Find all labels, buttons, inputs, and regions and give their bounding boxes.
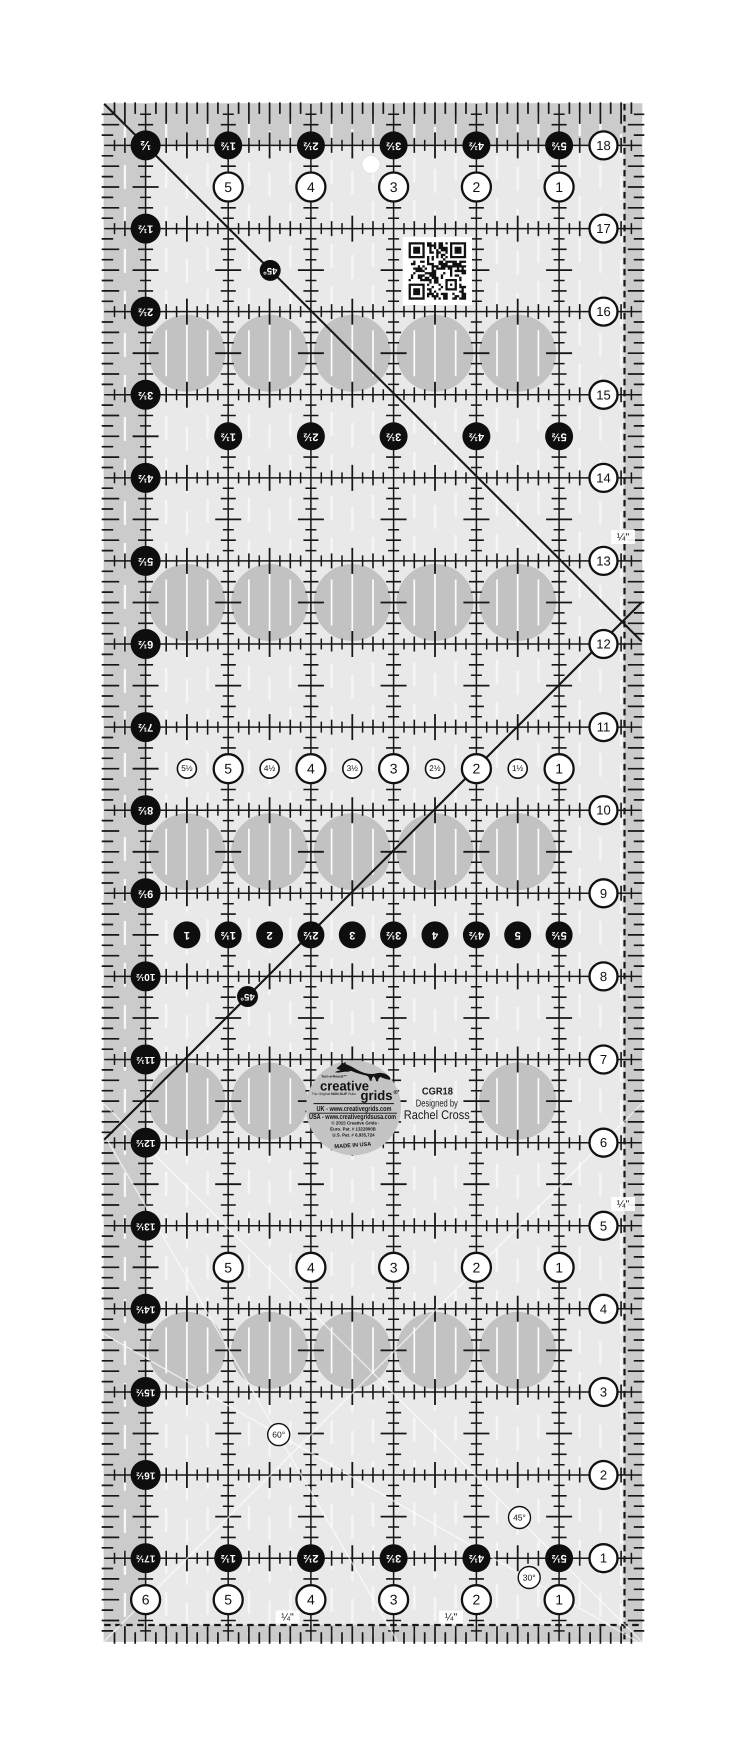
svg-text:3: 3	[390, 1592, 398, 1608]
svg-text:1½: 1½	[221, 1552, 236, 1564]
svg-text:3½: 3½	[347, 764, 359, 773]
svg-text:1: 1	[555, 1259, 563, 1275]
svg-text:2: 2	[473, 1592, 481, 1608]
svg-text:4: 4	[307, 1259, 315, 1275]
svg-text:¼": ¼"	[617, 532, 630, 544]
svg-text:1: 1	[555, 179, 563, 195]
svg-text:8½: 8½	[138, 804, 153, 816]
svg-text:2½: 2½	[303, 929, 318, 941]
svg-text:6: 6	[142, 1592, 150, 1608]
svg-text:8: 8	[600, 969, 607, 984]
svg-text:1½: 1½	[138, 223, 153, 235]
svg-text:4: 4	[307, 179, 315, 195]
svg-text:2: 2	[473, 179, 481, 195]
svg-text:1: 1	[555, 1592, 563, 1608]
svg-text:12½: 12½	[136, 1137, 155, 1148]
svg-text:U.S. Pat. # 6,935,724: U.S. Pat. # 6,935,724	[332, 1133, 375, 1138]
svg-text:18: 18	[596, 138, 610, 153]
svg-text:5: 5	[224, 1592, 232, 1608]
svg-text:15½: 15½	[136, 1387, 155, 1398]
svg-text:13½: 13½	[136, 1220, 155, 1231]
svg-text:2½: 2½	[303, 1552, 318, 1564]
svg-text:9½: 9½	[138, 887, 153, 899]
svg-text:3: 3	[349, 929, 355, 941]
svg-text:¼": ¼"	[617, 1199, 630, 1211]
svg-text:3: 3	[390, 179, 398, 195]
svg-text:1½: 1½	[221, 430, 236, 442]
svg-text:5: 5	[224, 1259, 232, 1275]
svg-text:4½: 4½	[469, 139, 484, 151]
svg-text:Euro. Pat. # 1322800B: Euro. Pat. # 1322800B	[330, 1127, 376, 1132]
svg-text:3½: 3½	[386, 1552, 401, 1564]
svg-text:5: 5	[600, 1218, 607, 1233]
svg-text:®: ®	[394, 1090, 398, 1096]
svg-text:3: 3	[390, 1259, 398, 1275]
svg-text:2: 2	[473, 1259, 481, 1275]
svg-text:10: 10	[596, 803, 610, 818]
svg-text:9: 9	[600, 886, 607, 901]
svg-text:4: 4	[307, 761, 315, 777]
svg-text:3: 3	[390, 761, 398, 777]
svg-text:4½: 4½	[469, 1552, 484, 1564]
svg-text:CGR18: CGR18	[422, 1087, 453, 1098]
svg-text:14: 14	[596, 470, 610, 485]
svg-text:5½: 5½	[551, 430, 566, 442]
svg-text:2½: 2½	[303, 430, 318, 442]
svg-text:6: 6	[600, 1135, 607, 1150]
svg-text:3: 3	[600, 1385, 607, 1400]
svg-text:2½: 2½	[429, 764, 441, 773]
svg-text:2: 2	[600, 1468, 607, 1483]
svg-text:2: 2	[267, 929, 273, 941]
svg-text:30°: 30°	[523, 1573, 536, 1583]
svg-text:60°: 60°	[272, 1430, 285, 1440]
svg-text:5½: 5½	[551, 139, 566, 151]
svg-text:¼": ¼"	[281, 1612, 294, 1624]
svg-text:17½: 17½	[136, 1553, 155, 1564]
svg-text:5: 5	[515, 929, 521, 941]
svg-text:1½: 1½	[221, 929, 236, 941]
svg-text:3½: 3½	[386, 430, 401, 442]
svg-text:7½: 7½	[138, 721, 153, 733]
svg-text:16: 16	[596, 304, 610, 319]
svg-text:Rachel Cross: Rachel Cross	[404, 1108, 470, 1122]
svg-text:4½: 4½	[469, 929, 484, 941]
svg-text:4: 4	[307, 1592, 315, 1608]
svg-text:11½: 11½	[136, 1054, 155, 1065]
svg-text:½: ½	[140, 138, 151, 153]
svg-text:grids: grids	[361, 1088, 393, 1103]
svg-text:1½: 1½	[512, 764, 524, 773]
svg-text:11: 11	[597, 720, 611, 735]
svg-text:¼": ¼"	[445, 1612, 458, 1624]
svg-text:45°: 45°	[263, 265, 278, 276]
svg-text:5½: 5½	[138, 555, 153, 567]
svg-text:4½: 4½	[138, 472, 153, 484]
svg-text:5: 5	[224, 179, 232, 195]
svg-text:5½: 5½	[181, 764, 193, 773]
svg-text:16½: 16½	[136, 1470, 155, 1481]
svg-text:3½: 3½	[386, 139, 401, 151]
svg-text:© 2015 Creative Grids ·: © 2015 Creative Grids ·	[331, 1121, 379, 1126]
svg-text:3½: 3½	[386, 929, 401, 941]
svg-text:The Original NON-SLIP Ruler: The Original NON-SLIP Ruler	[312, 1092, 358, 1096]
svg-text:2½: 2½	[138, 306, 153, 318]
svg-text:45°: 45°	[240, 991, 255, 1002]
svg-text:7: 7	[600, 1052, 607, 1067]
svg-text:1: 1	[600, 1551, 607, 1566]
svg-text:4: 4	[431, 929, 438, 941]
svg-text:6½: 6½	[138, 638, 153, 650]
svg-text:5½: 5½	[551, 1552, 566, 1564]
svg-text:2½: 2½	[303, 139, 318, 151]
svg-text:13: 13	[596, 553, 610, 568]
svg-text:1: 1	[555, 761, 563, 777]
svg-text:5½: 5½	[551, 929, 566, 941]
svg-text:2: 2	[473, 761, 481, 777]
svg-text:10½: 10½	[136, 971, 155, 982]
svg-text:4: 4	[600, 1301, 607, 1316]
svg-text:12: 12	[596, 637, 610, 652]
svg-text:15: 15	[596, 387, 610, 402]
svg-text:3½: 3½	[138, 389, 153, 401]
svg-text:4½: 4½	[264, 764, 276, 773]
svg-text:17: 17	[596, 221, 610, 236]
svg-text:4½: 4½	[469, 430, 484, 442]
svg-text:1½: 1½	[221, 139, 236, 151]
svg-text:45°: 45°	[513, 1513, 526, 1523]
svg-text:5: 5	[224, 761, 232, 777]
svg-text:1: 1	[184, 929, 190, 941]
svg-text:14½: 14½	[136, 1303, 155, 1314]
